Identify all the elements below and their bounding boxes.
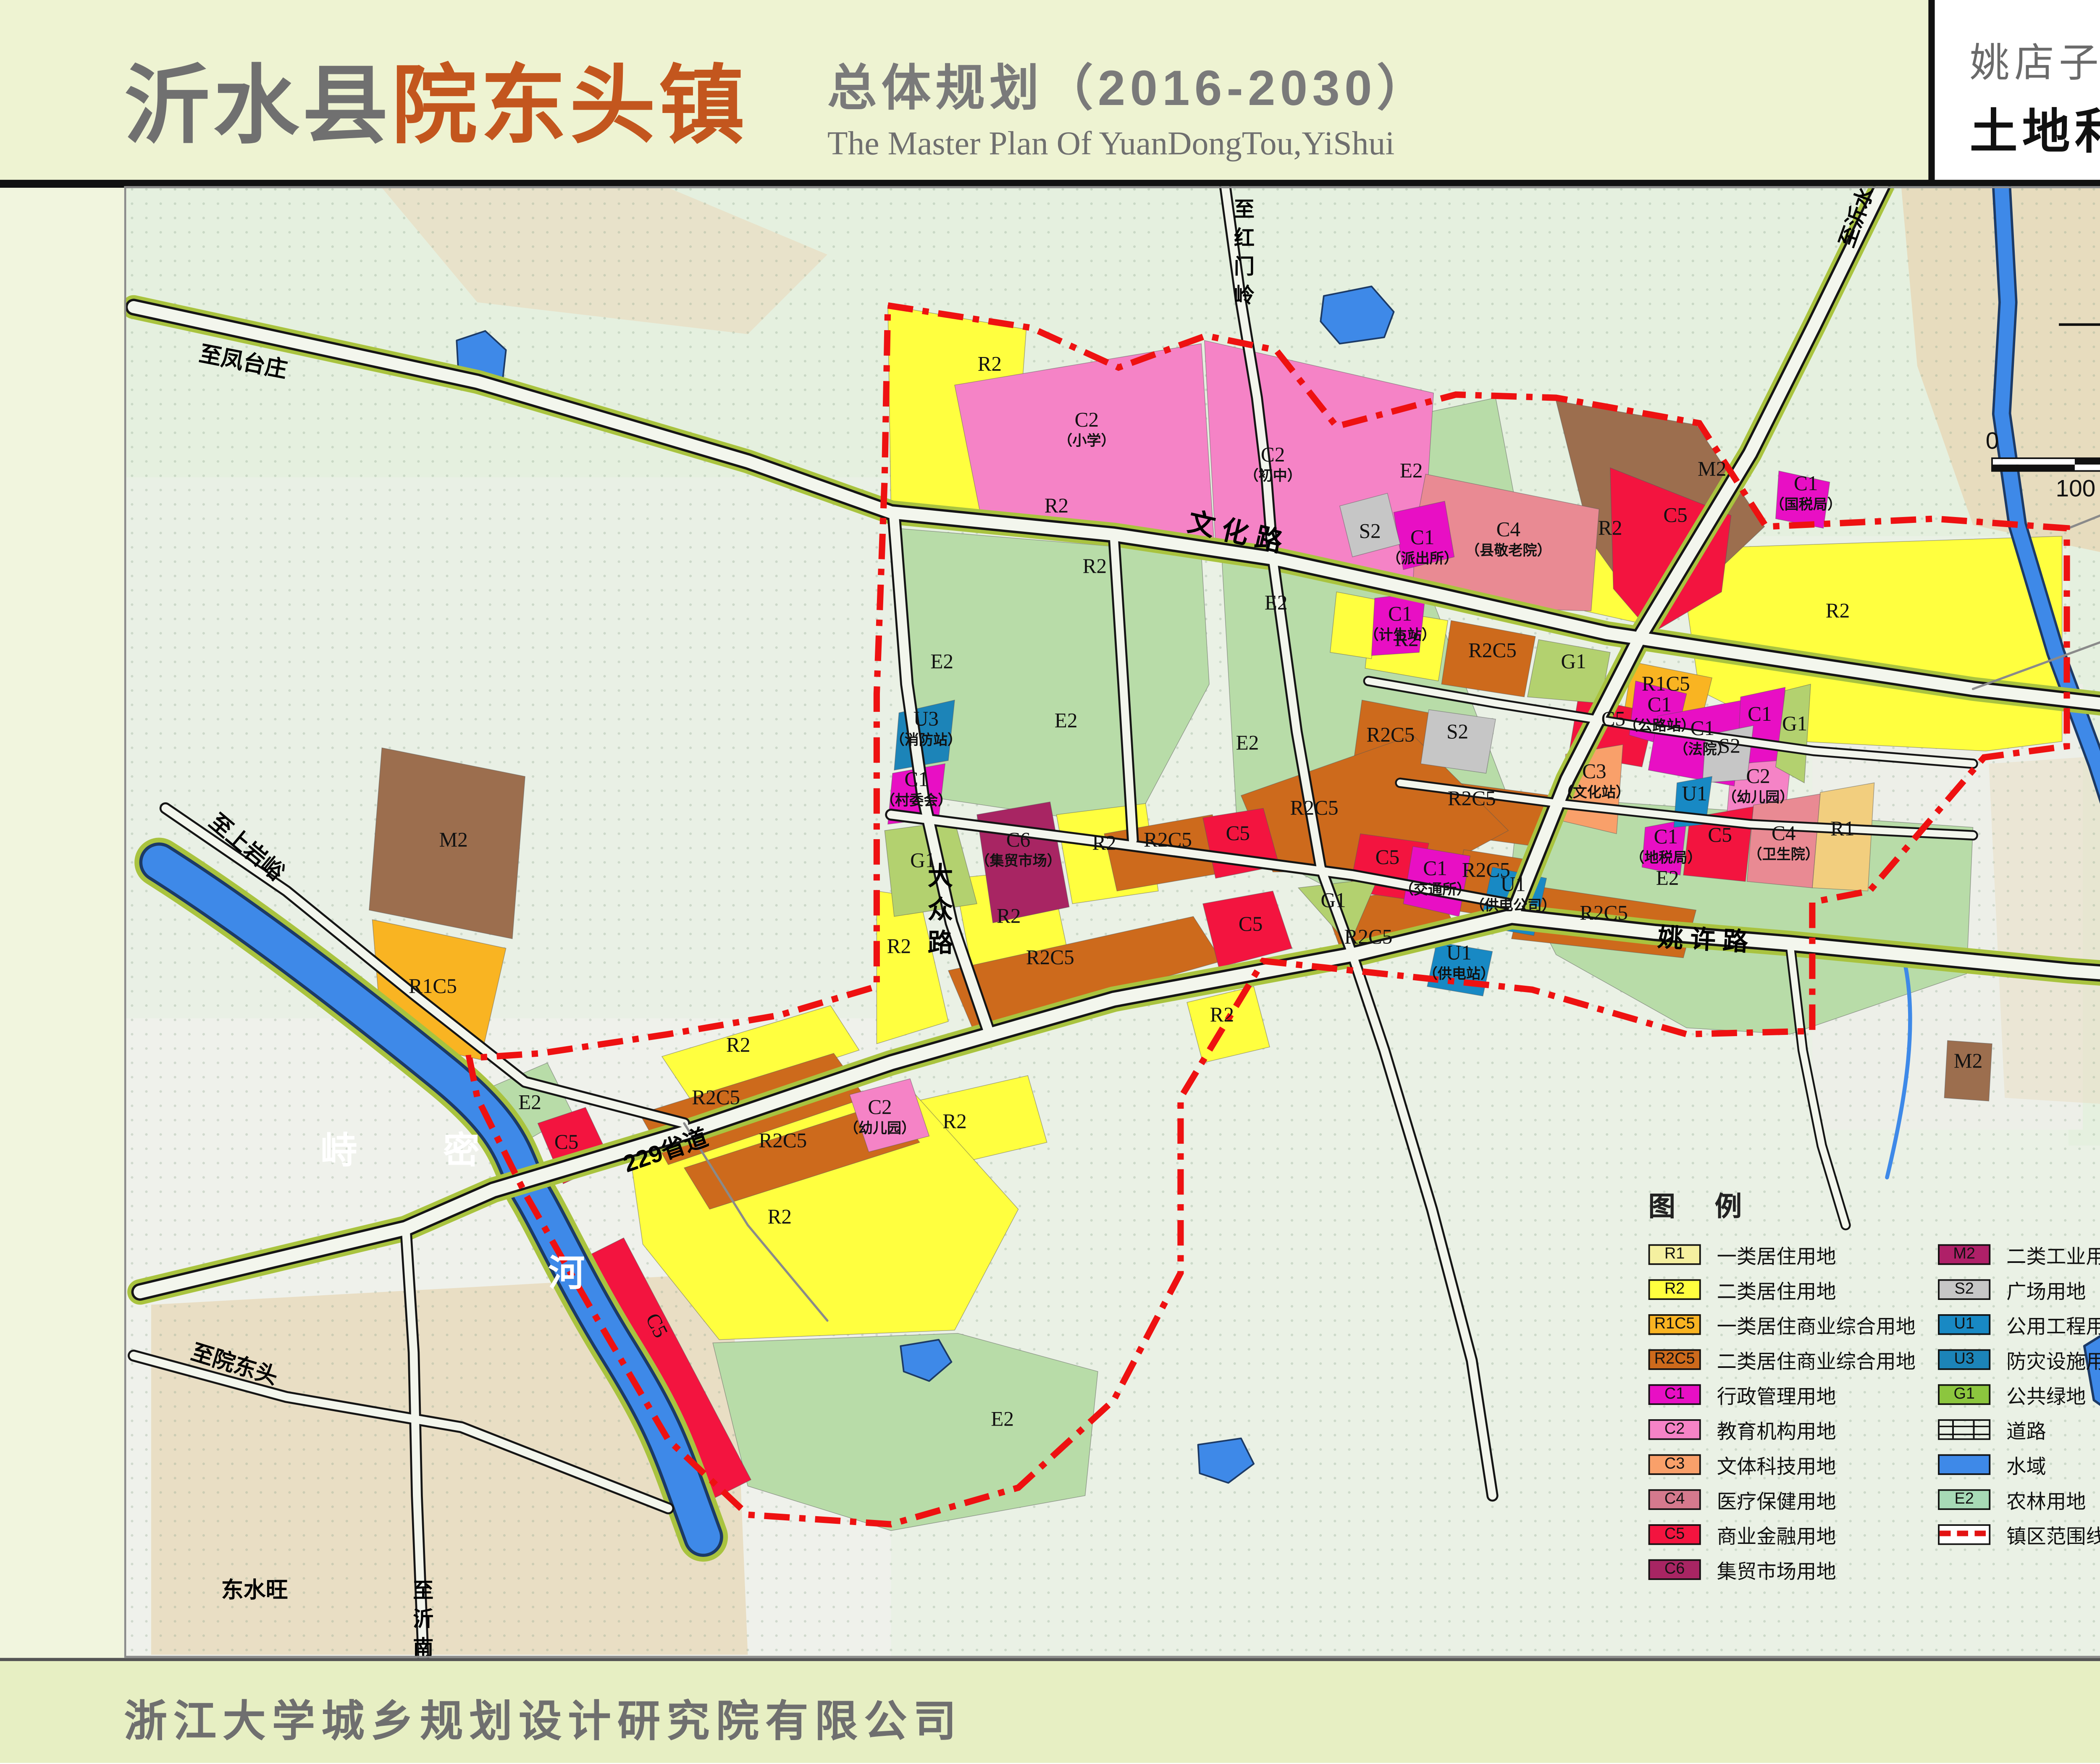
zone-code: R2C5	[1448, 787, 1496, 810]
zone-subname: （小学）	[1058, 433, 1115, 449]
zone-label: R2	[1826, 599, 1850, 622]
zone-code: G1	[1782, 712, 1807, 735]
color-swatch: M2	[1938, 1244, 1990, 1264]
zone-label: C5	[1239, 912, 1263, 935]
zone-code: C4	[1496, 518, 1520, 541]
zone-subname: （县敬老院）	[1465, 542, 1551, 559]
zone-subname: （交通所）	[1399, 881, 1471, 898]
zone-code: C1	[1410, 526, 1434, 549]
zone-label: R1	[1830, 817, 1854, 840]
zone-label: R2	[1083, 554, 1107, 577]
zone-label: C5	[1708, 823, 1732, 846]
zone-label: R2	[887, 934, 911, 958]
legend-code: R2	[1664, 1280, 1685, 1298]
legend-item: M2二类工业用地	[1938, 1236, 2100, 1271]
zone-label: R2	[997, 904, 1021, 927]
legend-label: 教育机构用地	[1717, 1414, 1836, 1444]
subtitle-en: The Master Plan Of YuanDongTou,YiShui	[827, 124, 1431, 164]
legend-item: C3文体科技用地	[1648, 1446, 1916, 1481]
zone-label: R2	[978, 352, 1002, 375]
color-swatch: C4	[1648, 1488, 1701, 1509]
zone-code: E2	[1055, 709, 1078, 732]
legend-columns: R1一类居住用地R2二类居住用地R1C5一类居住商业综合用地R2C5二类居住商业…	[1648, 1236, 2100, 1586]
zone-code: C1	[1388, 602, 1412, 625]
zone-label: S2	[1446, 720, 1468, 743]
zone-code: R2C5	[1290, 796, 1339, 819]
zone-code: C5	[1226, 822, 1250, 845]
zone-code: C1	[1690, 717, 1714, 740]
zone-label: C5	[554, 1130, 578, 1153]
zone-code: R2	[942, 1110, 966, 1133]
zone-code: M2	[1698, 457, 1726, 480]
scale-tick: 0	[1986, 428, 1999, 454]
zone-label: E2	[1236, 731, 1259, 754]
legend-label: 文体科技用地	[1717, 1449, 1836, 1479]
scale-bar-shape	[1992, 465, 2075, 471]
zone-code: R2C5	[1367, 723, 1415, 746]
river-name-char: 峙	[320, 1130, 357, 1171]
legend-item: C1行政管理用地	[1648, 1376, 1916, 1411]
road-label-shape: 沂	[413, 1608, 433, 1631]
zone-code: R2C5	[1144, 828, 1192, 851]
zone-code: R2	[997, 904, 1021, 927]
zone-code: M2	[1954, 1049, 1982, 1072]
legend-code: R2C5	[1654, 1350, 1695, 1368]
zone-code: R2	[1210, 1003, 1234, 1026]
zone-code: C2	[1261, 443, 1285, 466]
legend-item: R1C5一类居住商业综合用地	[1648, 1306, 1916, 1341]
zone-label: G1	[1561, 650, 1586, 673]
legend-label: 农林用地	[2006, 1484, 2086, 1514]
zone-code: M2	[439, 828, 467, 851]
zone-label: R2C5	[692, 1086, 740, 1109]
zone-subname: （幼儿园）	[844, 1120, 916, 1136]
road-label-shape: 南	[413, 1636, 433, 1658]
scale-bar-shape	[1992, 458, 2075, 465]
zone-label: R2C5	[1468, 639, 1517, 662]
zone-label: M2	[1954, 1049, 1982, 1072]
zone-code: E2	[1400, 459, 1423, 482]
legend-item: C6集贸市场用地	[1648, 1551, 1916, 1586]
color-swatch: C1	[1648, 1383, 1701, 1404]
river-name-char: 密	[443, 1130, 480, 1171]
subtitle-cn: 总体规划（2016-2030）	[827, 48, 1431, 119]
zone-subname: （供电公司）	[1470, 897, 1556, 913]
zone-code: R1	[1830, 817, 1854, 840]
zone-label: E2	[1656, 866, 1679, 889]
zone-code: C5	[1601, 707, 1625, 730]
legend-label: 一类居住用地	[1717, 1239, 1836, 1269]
color-swatch: U1	[1938, 1313, 1990, 1334]
zone-code: E2	[1236, 731, 1259, 754]
page-title: 沂水县院东头镇	[124, 35, 748, 160]
zone-label: R2	[1394, 627, 1418, 651]
road-label-shape: 门	[1234, 255, 1255, 278]
zone-label: R2C5	[1290, 796, 1339, 819]
legend-item: U3防灾设施用地	[1938, 1341, 2100, 1376]
color-swatch: C5	[1648, 1523, 1701, 1544]
zone-label: R2C5	[1344, 925, 1392, 948]
footer: 浙江大学城乡规划设计研究院有限公司 2019.06	[0, 1658, 2100, 1763]
zone-label: S2	[1359, 519, 1381, 542]
legend-label: 镇区范围线	[2006, 1519, 2100, 1549]
zone-code: R2	[1083, 554, 1107, 577]
legend: 图 例 R1一类居住用地R2二类居住用地R1C5一类居住商业综合用地R2C5二类…	[1648, 1184, 2100, 1586]
zone-code: R2	[1045, 494, 1068, 517]
zone-code: R2C5	[1026, 946, 1074, 969]
legend-item: E2农林用地	[1938, 1481, 2100, 1516]
color-swatch: E2	[1938, 1488, 1990, 1509]
zone-label: R2	[1210, 1003, 1234, 1026]
road-label-shape: 红	[1234, 226, 1255, 249]
zone-label: C5	[1663, 504, 1687, 527]
legend-item: S2广场用地	[1938, 1271, 2100, 1306]
zone-label: R2C5	[1144, 828, 1192, 851]
zone-label: C5	[1601, 707, 1625, 730]
zone-label: G1	[1782, 712, 1807, 735]
zone-subname: （供电站）	[1423, 966, 1495, 982]
color-swatch: R1C5	[1648, 1313, 1701, 1334]
legend-code: U3	[1954, 1350, 1974, 1368]
zone-label: R1C5	[1642, 672, 1690, 695]
legend-label: 广场用地	[2006, 1274, 2086, 1304]
zone-label: R2	[1045, 494, 1068, 517]
color-swatch: R2C5	[1648, 1349, 1701, 1369]
zone-code: C5	[1375, 845, 1399, 869]
zone-code: R2C5	[1344, 925, 1392, 948]
legend-label: 二类工业用地	[2006, 1239, 2100, 1269]
zone-code: R2	[1394, 627, 1418, 651]
district-name: 姚店子功能区	[1970, 32, 2100, 89]
legend-column: R1一类居住用地R2二类居住用地R1C5一类居住商业综合用地R2C5二类居住商业…	[1648, 1236, 1916, 1586]
water-swatch	[1938, 1454, 1990, 1474]
zone-subname: （公路站）	[1624, 717, 1695, 734]
legend-label: 行政管理用地	[1717, 1379, 1836, 1409]
zone-code: C5	[1239, 912, 1263, 935]
legend-code: S2	[1955, 1280, 1974, 1298]
zone-subname: （卫生院）	[1748, 846, 1819, 863]
legend-code: R1C5	[1654, 1315, 1695, 1333]
legend-label: 一类居住商业综合用地	[1717, 1309, 1916, 1339]
zone-code: G1	[1321, 888, 1346, 911]
zone-code: U3	[913, 707, 939, 730]
header-divider	[1928, 0, 1935, 188]
zone-subname: （初中）	[1244, 467, 1301, 484]
legend-label: 二类居住商业综合用地	[1717, 1344, 1916, 1374]
legend-label: 水域	[2006, 1449, 2046, 1479]
zone-label: E2	[930, 650, 953, 673]
title-county: 沂水县	[124, 59, 391, 154]
color-swatch: C3	[1648, 1454, 1701, 1474]
map-name: 土地利用规划图	[1970, 107, 2100, 159]
zone-code: R2	[726, 1033, 750, 1056]
zone-code: C2	[1075, 408, 1099, 431]
legend-item: 道路	[1938, 1411, 2100, 1446]
zone-label: R2	[1092, 831, 1116, 854]
legend-code: R1	[1664, 1245, 1685, 1263]
zone-subname: （地税局）	[1630, 849, 1701, 866]
color-swatch: U3	[1938, 1349, 1990, 1369]
zone-label: M2	[1698, 457, 1726, 480]
zone-code: S2	[1446, 720, 1468, 743]
zone-code: E2	[1656, 866, 1679, 889]
road-label-shape: 至	[1234, 198, 1255, 221]
road-label: 姚 许 路	[1656, 923, 1749, 956]
zone-subname: （消防站）	[890, 732, 962, 748]
zone-label: R2	[942, 1110, 966, 1133]
zone-code: R2	[1598, 516, 1622, 539]
legend-item: R1一类居住用地	[1648, 1236, 1916, 1271]
road-swatch	[1938, 1418, 1990, 1439]
legend-item: C2教育机构用地	[1648, 1411, 1916, 1446]
zone-code: C2	[1746, 764, 1770, 787]
zone-code: E2	[518, 1090, 541, 1113]
zone-subname: （法院）	[1674, 741, 1731, 758]
zone-code: C1	[1794, 472, 1818, 495]
zone-code: C1	[904, 767, 928, 790]
title-town: 院东头镇	[391, 59, 748, 154]
zone-code: R2	[978, 352, 1002, 375]
river-name-char: 河	[548, 1253, 585, 1294]
legend-label: 道路	[2006, 1414, 2046, 1444]
color-swatch: S2	[1938, 1278, 1990, 1299]
road-label-shape: 大	[928, 861, 953, 890]
zone-label: R1C5	[409, 974, 457, 997]
legend-item: U1公用工程用地	[1938, 1306, 2100, 1341]
zone-code: R1C5	[1642, 672, 1690, 695]
color-swatch: C6	[1648, 1559, 1701, 1579]
legend-label: 医疗保健用地	[1717, 1484, 1836, 1514]
road-label-shape: 至	[413, 1579, 433, 1602]
zone-code: C6	[1006, 828, 1030, 851]
zone-code: C4	[1772, 822, 1795, 845]
legend-label: 商业金融用地	[1717, 1519, 1836, 1549]
zone-code: C1	[1748, 702, 1772, 725]
zone-code: U1	[1682, 782, 1707, 805]
legend-item: R2二类居住用地	[1648, 1271, 1916, 1306]
color-swatch: R2	[1648, 1278, 1701, 1299]
zone-label: E2	[1400, 459, 1423, 482]
zone-code: R2	[1826, 599, 1850, 622]
legend-code: C6	[1664, 1560, 1685, 1578]
legend-code: U1	[1954, 1315, 1974, 1333]
legend-item: C4医疗保健用地	[1648, 1481, 1916, 1516]
zone-code: R2C5	[759, 1129, 807, 1152]
zone-code: S2	[1359, 519, 1381, 542]
scale-bar-shape	[2075, 458, 2100, 465]
legend-column: M2二类工业用地S2广场用地U1公用工程用地U3防灾设施用地G1公共绿地道路水域…	[1938, 1236, 2100, 1586]
zone-code: R1C5	[409, 974, 457, 997]
zone-code: C1	[1423, 857, 1447, 880]
page: 沂水县院东头镇 总体规划（2016-2030） The Master Plan …	[0, 0, 2100, 1763]
zone-code: C3	[1582, 759, 1606, 782]
zone-code: E2	[991, 1407, 1014, 1430]
road-label: 大众路	[928, 861, 953, 957]
zone-code: E2	[930, 650, 953, 673]
zone-code: R2	[1092, 831, 1116, 854]
legend-code: E2	[1955, 1490, 1974, 1508]
legend-label: 二类居住用地	[1717, 1274, 1836, 1304]
zone-code: R2C5	[1468, 639, 1517, 662]
zone-label: R2C5	[1580, 901, 1628, 924]
legend-title: 图 例	[1648, 1184, 2100, 1223]
zone-code: U1	[1501, 872, 1526, 895]
zone-code: R2C5	[692, 1086, 740, 1109]
zone-code: C5	[554, 1130, 578, 1153]
road-label: 东水旺	[221, 1578, 288, 1602]
road-label-shape: 众	[928, 895, 953, 924]
scale-tick: 100	[2055, 475, 2095, 502]
zone-code: G1	[1561, 650, 1586, 673]
zone-label: R2	[726, 1033, 750, 1056]
zone-subname: （集贸市场）	[975, 853, 1061, 869]
zone-code: C1	[1654, 825, 1678, 848]
legend-code: C4	[1664, 1490, 1685, 1508]
zone-label: E2	[1055, 709, 1078, 732]
legend-code: G1	[1953, 1385, 1975, 1403]
zone-label: R2	[1598, 516, 1622, 539]
legend-item: G1公共绿地	[1938, 1376, 2100, 1411]
zone-label: M2	[439, 828, 467, 851]
legend-code: C3	[1664, 1455, 1685, 1473]
color-swatch: G1	[1938, 1383, 1990, 1404]
legend-code: M2	[1953, 1245, 1975, 1263]
legend-label: 集贸市场用地	[1717, 1554, 1836, 1584]
zone-subname: （村委会）	[881, 792, 952, 808]
zone-code: C2	[868, 1095, 892, 1118]
legend-item: 镇区范围线	[1938, 1516, 2100, 1551]
legend-label: 公共绿地	[2006, 1379, 2086, 1409]
road-label-shape: 路	[928, 928, 953, 957]
scale-bar-shape	[2075, 465, 2100, 471]
zone-code: R2C5	[1580, 901, 1628, 924]
zone-label: C1	[1748, 702, 1772, 725]
zone-code: C5	[1708, 823, 1732, 846]
zone-label: E2	[1265, 591, 1288, 614]
company-name: 浙江大学城乡规划设计研究院有限公司	[124, 1687, 962, 1749]
zones-R2-shape	[1330, 592, 1378, 659]
legend-item: 水域	[1938, 1446, 2100, 1481]
zone-label: R2	[768, 1205, 792, 1228]
legend-code: C2	[1664, 1420, 1685, 1438]
zone-label: R2C5	[1448, 787, 1496, 810]
boundary-swatch	[1938, 1523, 1990, 1544]
zone-label: C5	[1226, 822, 1250, 845]
zone-label: E2	[518, 1090, 541, 1113]
zone-label: R2C5	[1367, 723, 1415, 746]
legend-label: 公用工程用地	[2006, 1309, 2100, 1339]
zone-code: U1	[1446, 941, 1472, 964]
zone-label: R2C5	[1026, 946, 1074, 969]
subtitle-block: 总体规划（2016-2030） The Master Plan Of YuanD…	[827, 48, 1431, 164]
zone-code: E2	[1265, 591, 1288, 614]
legend-code: C5	[1664, 1525, 1685, 1543]
zone-label: R2C5	[759, 1129, 807, 1152]
zone-label: C5	[1375, 845, 1399, 869]
zone-subname: （幼儿园）	[1722, 789, 1794, 805]
zone-label: U1	[1682, 782, 1707, 805]
road-label: 至沂南	[413, 1579, 433, 1658]
legend-code: C1	[1664, 1385, 1685, 1403]
color-swatch: C2	[1648, 1418, 1701, 1439]
legend-label: 防灾设施用地	[2006, 1344, 2100, 1374]
zone-code: R2	[768, 1205, 792, 1228]
header: 沂水县院东头镇 总体规划（2016-2030） The Master Plan …	[0, 0, 1928, 180]
zone-subname: （文化站）	[1559, 784, 1630, 801]
zone-subname: （派出所）	[1387, 550, 1458, 567]
sheet-title-panel: 姚店子功能区 土地利用规划图36	[1935, 0, 2100, 180]
legend-item: C5商业金融用地	[1648, 1516, 1916, 1551]
legend-item: R2C5二类居住商业综合用地	[1648, 1341, 1916, 1376]
color-swatch: R1	[1648, 1244, 1701, 1264]
zone-code: C5	[1663, 504, 1687, 527]
zone-code: R2	[887, 934, 911, 958]
zone-code: C1	[1647, 693, 1671, 716]
road-label-shape: 岭	[1234, 284, 1255, 307]
map-name-row: 土地利用规划图36	[1970, 92, 2100, 163]
zone-label: E2	[991, 1407, 1014, 1430]
zone-label: G1	[1321, 888, 1346, 911]
zone-subname: （国税局）	[1770, 496, 1842, 512]
